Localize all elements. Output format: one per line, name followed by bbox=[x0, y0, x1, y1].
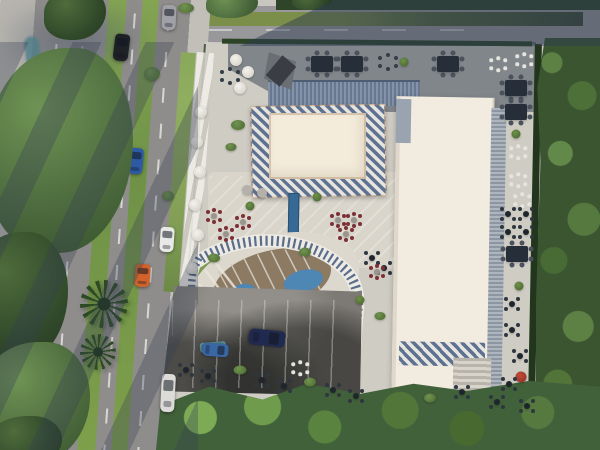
tree-canopy bbox=[0, 48, 133, 253]
tree-layer bbox=[0, 0, 600, 450]
tree-canopy bbox=[44, 0, 106, 40]
tree-canopy bbox=[206, 0, 258, 18]
tree-canopy bbox=[0, 416, 62, 450]
aerial-render bbox=[0, 0, 600, 450]
